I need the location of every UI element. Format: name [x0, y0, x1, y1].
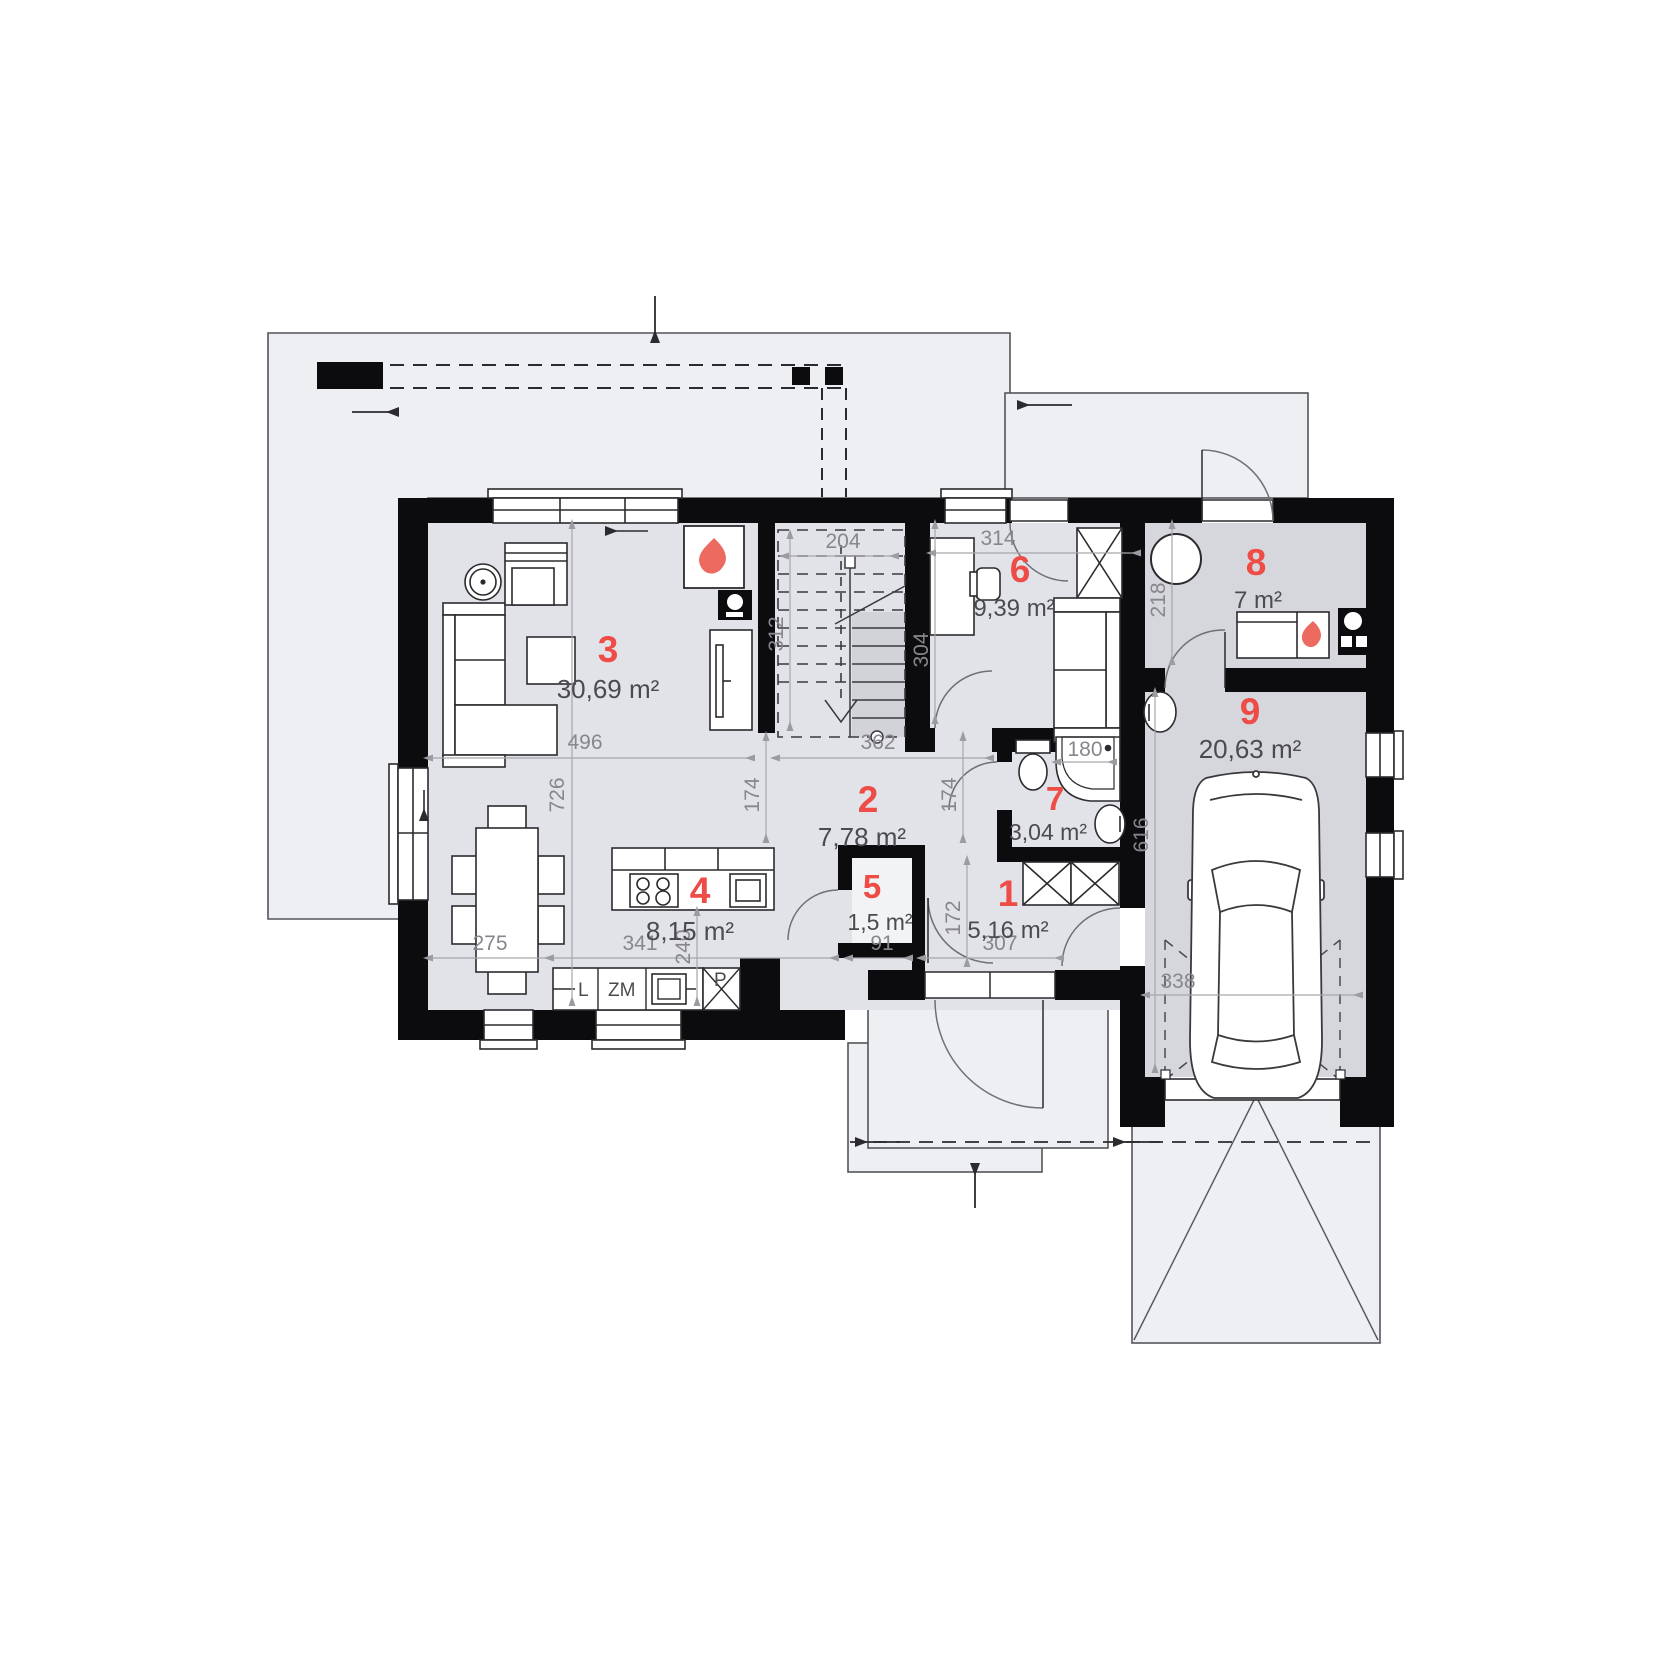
- dim-corridor-width: 362: [860, 731, 895, 754]
- furnace-icon: [1338, 608, 1368, 655]
- dim-corridor-a: 174: [741, 777, 764, 812]
- dim-room8-depth: 218: [1147, 582, 1170, 617]
- svg-text:5: 5: [863, 868, 881, 905]
- boiler-tank: [1151, 534, 1201, 584]
- dim-pantry-width: 91: [870, 932, 893, 955]
- svg-text:4: 4: [690, 870, 711, 911]
- dim-garage-depth: 616: [1130, 817, 1153, 852]
- room6-wardrobe: [1077, 528, 1122, 598]
- svg-text:5,16 m²: 5,16 m²: [967, 917, 1048, 944]
- svg-text:3: 3: [598, 629, 619, 670]
- dim-room6-width: 314: [980, 527, 1015, 550]
- svg-text:9: 9: [1240, 691, 1261, 732]
- svg-text:7,78 m²: 7,78 m²: [818, 822, 906, 852]
- svg-text:9,39 m²: 9,39 m²: [973, 595, 1054, 622]
- svg-text:8,15 m²: 8,15 m²: [646, 916, 734, 946]
- svg-text:3,04 m²: 3,04 m²: [1009, 819, 1087, 845]
- svg-text:1: 1: [998, 873, 1019, 914]
- floor-plan-page: L ZM P: [0, 0, 1680, 1680]
- washbasin: [1095, 805, 1125, 843]
- driveway-outline: [1132, 1090, 1380, 1343]
- dim-shower: 180: [1067, 738, 1102, 761]
- dim-stairs-depth: 312: [765, 616, 788, 651]
- dishwasher-label: ZM: [608, 980, 635, 1001]
- svg-text:7 m²: 7 m²: [1234, 587, 1282, 614]
- svg-text:1,5 m²: 1,5 m²: [847, 909, 913, 935]
- garage-window-2: [1366, 831, 1403, 879]
- floor-plan-drawing: L ZM P: [0, 0, 1680, 1680]
- dining-window: [389, 764, 428, 904]
- garage-door-jamb-left: [1161, 1070, 1170, 1079]
- washing-machine: P: [703, 968, 740, 1010]
- side-table-round: [465, 564, 501, 600]
- washer-label: P: [714, 970, 727, 991]
- dim-living-width: 496: [567, 731, 602, 754]
- svg-text:8: 8: [1246, 542, 1267, 583]
- svg-text:6: 6: [1010, 549, 1031, 590]
- armchair: [505, 543, 567, 605]
- dim-dining-width: 275: [472, 932, 507, 955]
- room6-sofa: [1054, 598, 1120, 742]
- living-window: [488, 489, 682, 523]
- sink-icon: [730, 874, 766, 907]
- tv-cabinet: [710, 630, 752, 730]
- garage-door-jamb-right: [1336, 1070, 1345, 1079]
- svg-text:7: 7: [1046, 780, 1064, 817]
- boiler-bench: [1237, 612, 1329, 658]
- fridge-label: L: [578, 980, 589, 1001]
- car: [1188, 771, 1324, 1098]
- kitchen-window-1: [480, 1010, 537, 1049]
- svg-text:20,63 m²: 20,63 m²: [1199, 734, 1302, 764]
- dim-room6-depth: 304: [910, 632, 933, 667]
- dim-living-depth: 726: [546, 777, 569, 812]
- kitchen-window-2: [592, 1010, 685, 1049]
- svg-text:30,69 m²: 30,69 m²: [557, 674, 660, 704]
- cooktop-icon: [630, 874, 678, 907]
- dim-hall-depth: 172: [942, 900, 965, 935]
- svg-text:2: 2: [858, 779, 879, 820]
- garage-window-1: [1366, 731, 1403, 779]
- hall-wardrobe: [1023, 862, 1119, 905]
- room6-window: [941, 489, 1012, 523]
- dim-stairs-width: 204: [825, 530, 860, 553]
- garage-basin: [1144, 692, 1176, 732]
- dim-garage-width: 338: [1160, 970, 1195, 993]
- dim-corridor-b: 174: [938, 777, 961, 812]
